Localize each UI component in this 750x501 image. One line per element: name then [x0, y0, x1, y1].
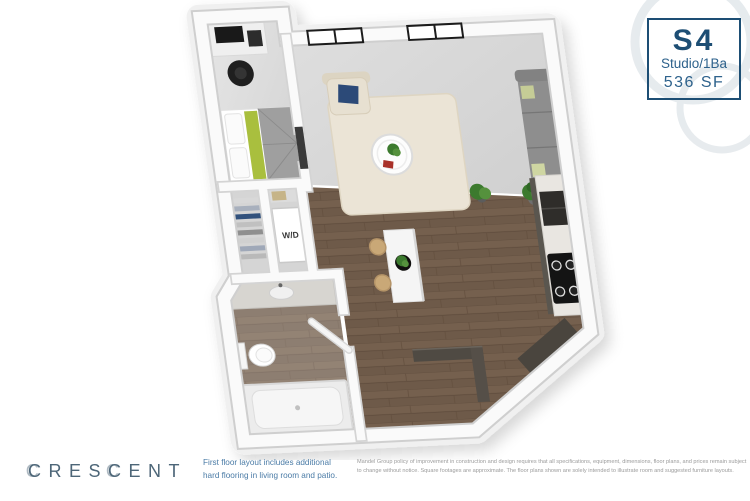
sofa-pillow — [531, 163, 546, 177]
bathtub — [242, 380, 353, 435]
crescent-logo: CRESCENT — [28, 461, 187, 482]
window — [307, 28, 363, 45]
sofa-pillow — [520, 85, 535, 99]
basket — [271, 191, 286, 201]
floor-plan-svg: W/D — [0, 0, 750, 460]
window — [407, 23, 463, 40]
desk — [208, 22, 268, 57]
printer — [247, 30, 263, 47]
flooring-note: First floor layout includes additional h… — [203, 457, 353, 482]
unit-area: 536 SF — [664, 73, 725, 93]
unit-info-box: S4 Studio/1Ba 536 SF — [647, 18, 741, 100]
washer-dryer-label: W/D — [282, 230, 300, 241]
blue-pillow — [338, 84, 358, 104]
unit-code: S4 — [673, 25, 716, 57]
unit-type: Studio/1Ba — [661, 56, 727, 73]
floor-plan: W/D — [0, 0, 750, 460]
monitor — [214, 26, 244, 43]
legal-disclaimer: Mandel Group policy of improvement in co… — [357, 458, 747, 476]
